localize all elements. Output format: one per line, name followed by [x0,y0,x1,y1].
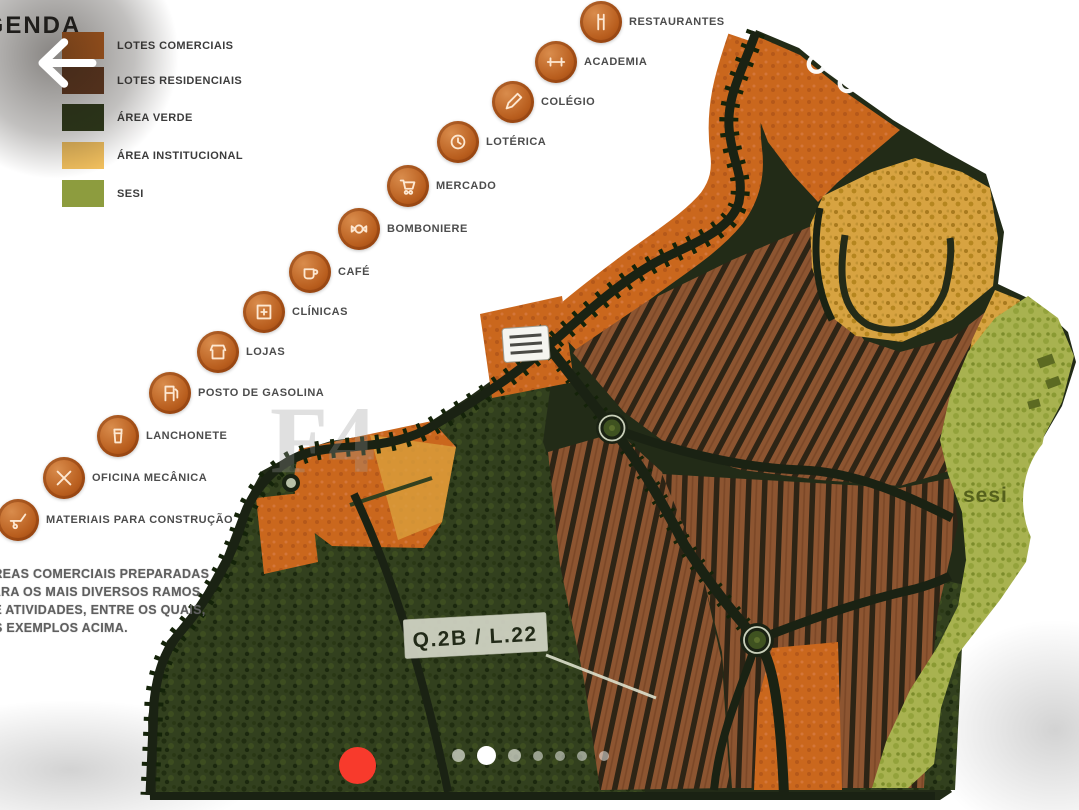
share-icon [809,37,856,91]
clinic-icon [243,291,285,333]
roundabout [740,623,774,657]
market-icon [387,165,429,207]
poi-materiais-para-construcao: MATERIAIS PARA CONSTRUÇÃO [0,499,233,541]
commercial-lots-region [256,492,318,574]
candy-shop-icon [338,208,380,250]
shops-icon [197,331,239,373]
carousel-dot[interactable] [599,751,609,761]
carousel-dots[interactable] [452,746,609,765]
mechanic-icon [43,457,85,499]
carousel-dot[interactable] [452,749,465,762]
poi-oficina-mecanica: OFICINA MECÂNICA [43,457,207,499]
poi-lojas: LOJAS [197,331,285,373]
cafe-icon [289,251,331,293]
lottery-icon [437,121,479,163]
building-materials-icon [0,499,39,541]
poi-lanchonete: LANCHONETE [97,415,227,457]
poi-mercado: MERCADO [387,165,496,207]
lot-label: Q.2B / L.22 [403,612,548,658]
back-button[interactable] [34,34,100,92]
school-icon [492,81,534,123]
commercial-areas-note: ÁREAS COMERCIAIS PREPARADAS PARA OS MAIS… [0,566,244,638]
carousel-dot[interactable] [577,751,587,761]
share-button[interactable] [802,32,864,96]
poi-loterica: LOTÉRICA [437,121,546,163]
poi-colegio: COLÉGIO [492,81,595,123]
poi-cafe: CAFÉ [289,251,370,293]
listing-photo-viewer[interactable]: sesi F4 [0,0,1079,810]
restaurant-icon [580,1,622,43]
building-marker [502,325,550,362]
roundabout [596,412,628,444]
carousel-dot[interactable] [555,751,565,761]
carousel-dot[interactable] [508,749,521,762]
legend-item: SESI [62,180,144,207]
red-indicator-dot [339,747,376,784]
poi-clinicas: CLÍNICAS [243,291,348,333]
carousel-dot[interactable] [533,751,543,761]
heart-icon [965,42,1011,84]
poi-academia: ACADEMIA [535,41,647,83]
poi-posto-de-gasolina: POSTO DE GASOLINA [149,372,324,414]
carousel-dot-active[interactable] [477,746,496,765]
back-arrow-icon [42,42,92,83]
sesi-swatch [62,180,104,207]
favorite-button[interactable] [956,34,1020,90]
snack-bar-icon [97,415,139,457]
poi-restaurantes: RESTAURANTES [580,1,725,43]
sesi-area-label: sesi [963,484,1008,507]
poi-bomboniere: BOMBONIERE [338,208,468,250]
gas-station-icon [149,372,191,414]
gym-icon [535,41,577,83]
